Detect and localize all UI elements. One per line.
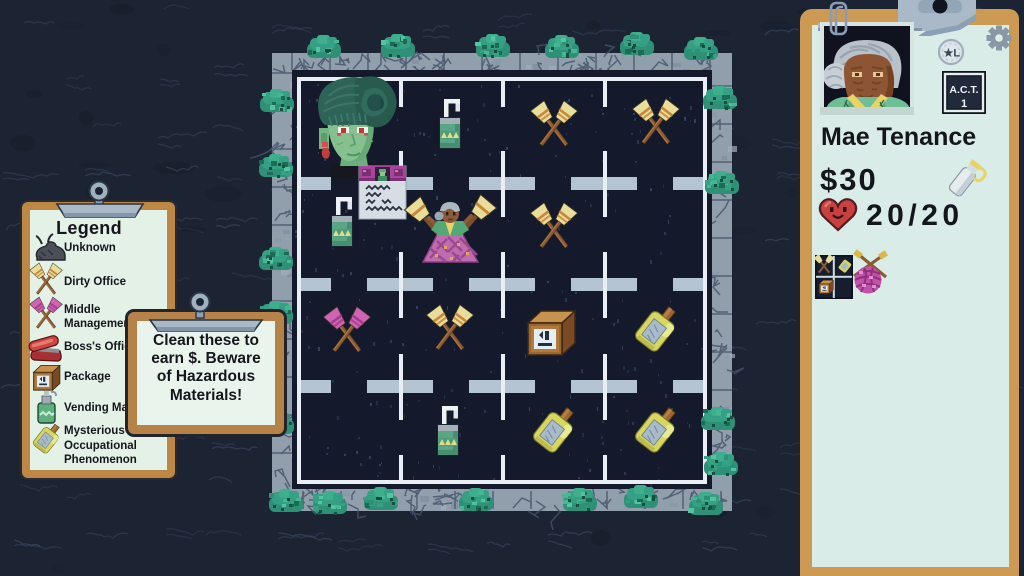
svg-text:1: 1 <box>961 98 967 110</box>
svg-text:★L: ★L <box>944 48 961 60</box>
svg-text:A.C.T.: A.C.T. <box>949 84 978 96</box>
